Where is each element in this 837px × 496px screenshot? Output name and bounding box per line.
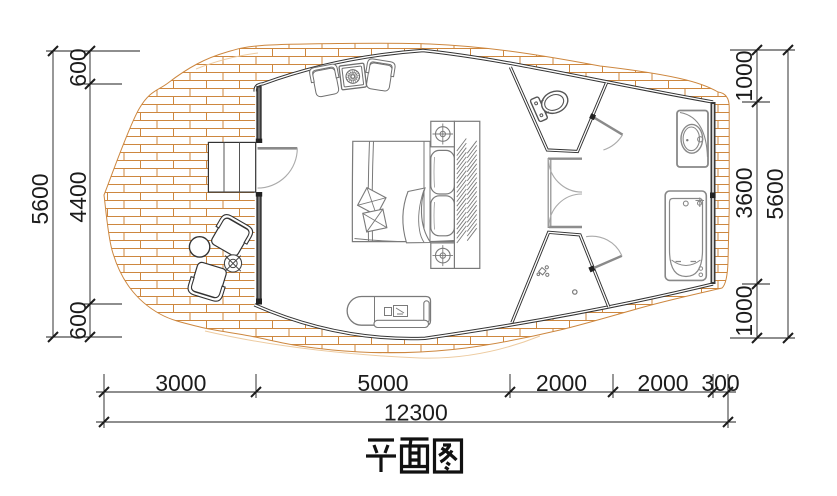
svg-text:3000: 3000 <box>155 370 206 396</box>
svg-text:12300: 12300 <box>384 400 448 426</box>
svg-text:1000: 1000 <box>731 285 757 336</box>
svg-text:600: 600 <box>65 48 91 86</box>
svg-text:4400: 4400 <box>65 171 91 222</box>
svg-text:3600: 3600 <box>731 167 757 218</box>
svg-text:1000: 1000 <box>731 50 757 101</box>
svg-text:2000: 2000 <box>536 370 587 396</box>
svg-text:5600: 5600 <box>27 173 53 224</box>
svg-text:5600: 5600 <box>762 168 788 219</box>
svg-text:2000: 2000 <box>637 370 688 396</box>
svg-text:5000: 5000 <box>357 370 408 396</box>
svg-text:600: 600 <box>65 301 91 339</box>
svg-text:300: 300 <box>701 370 739 396</box>
